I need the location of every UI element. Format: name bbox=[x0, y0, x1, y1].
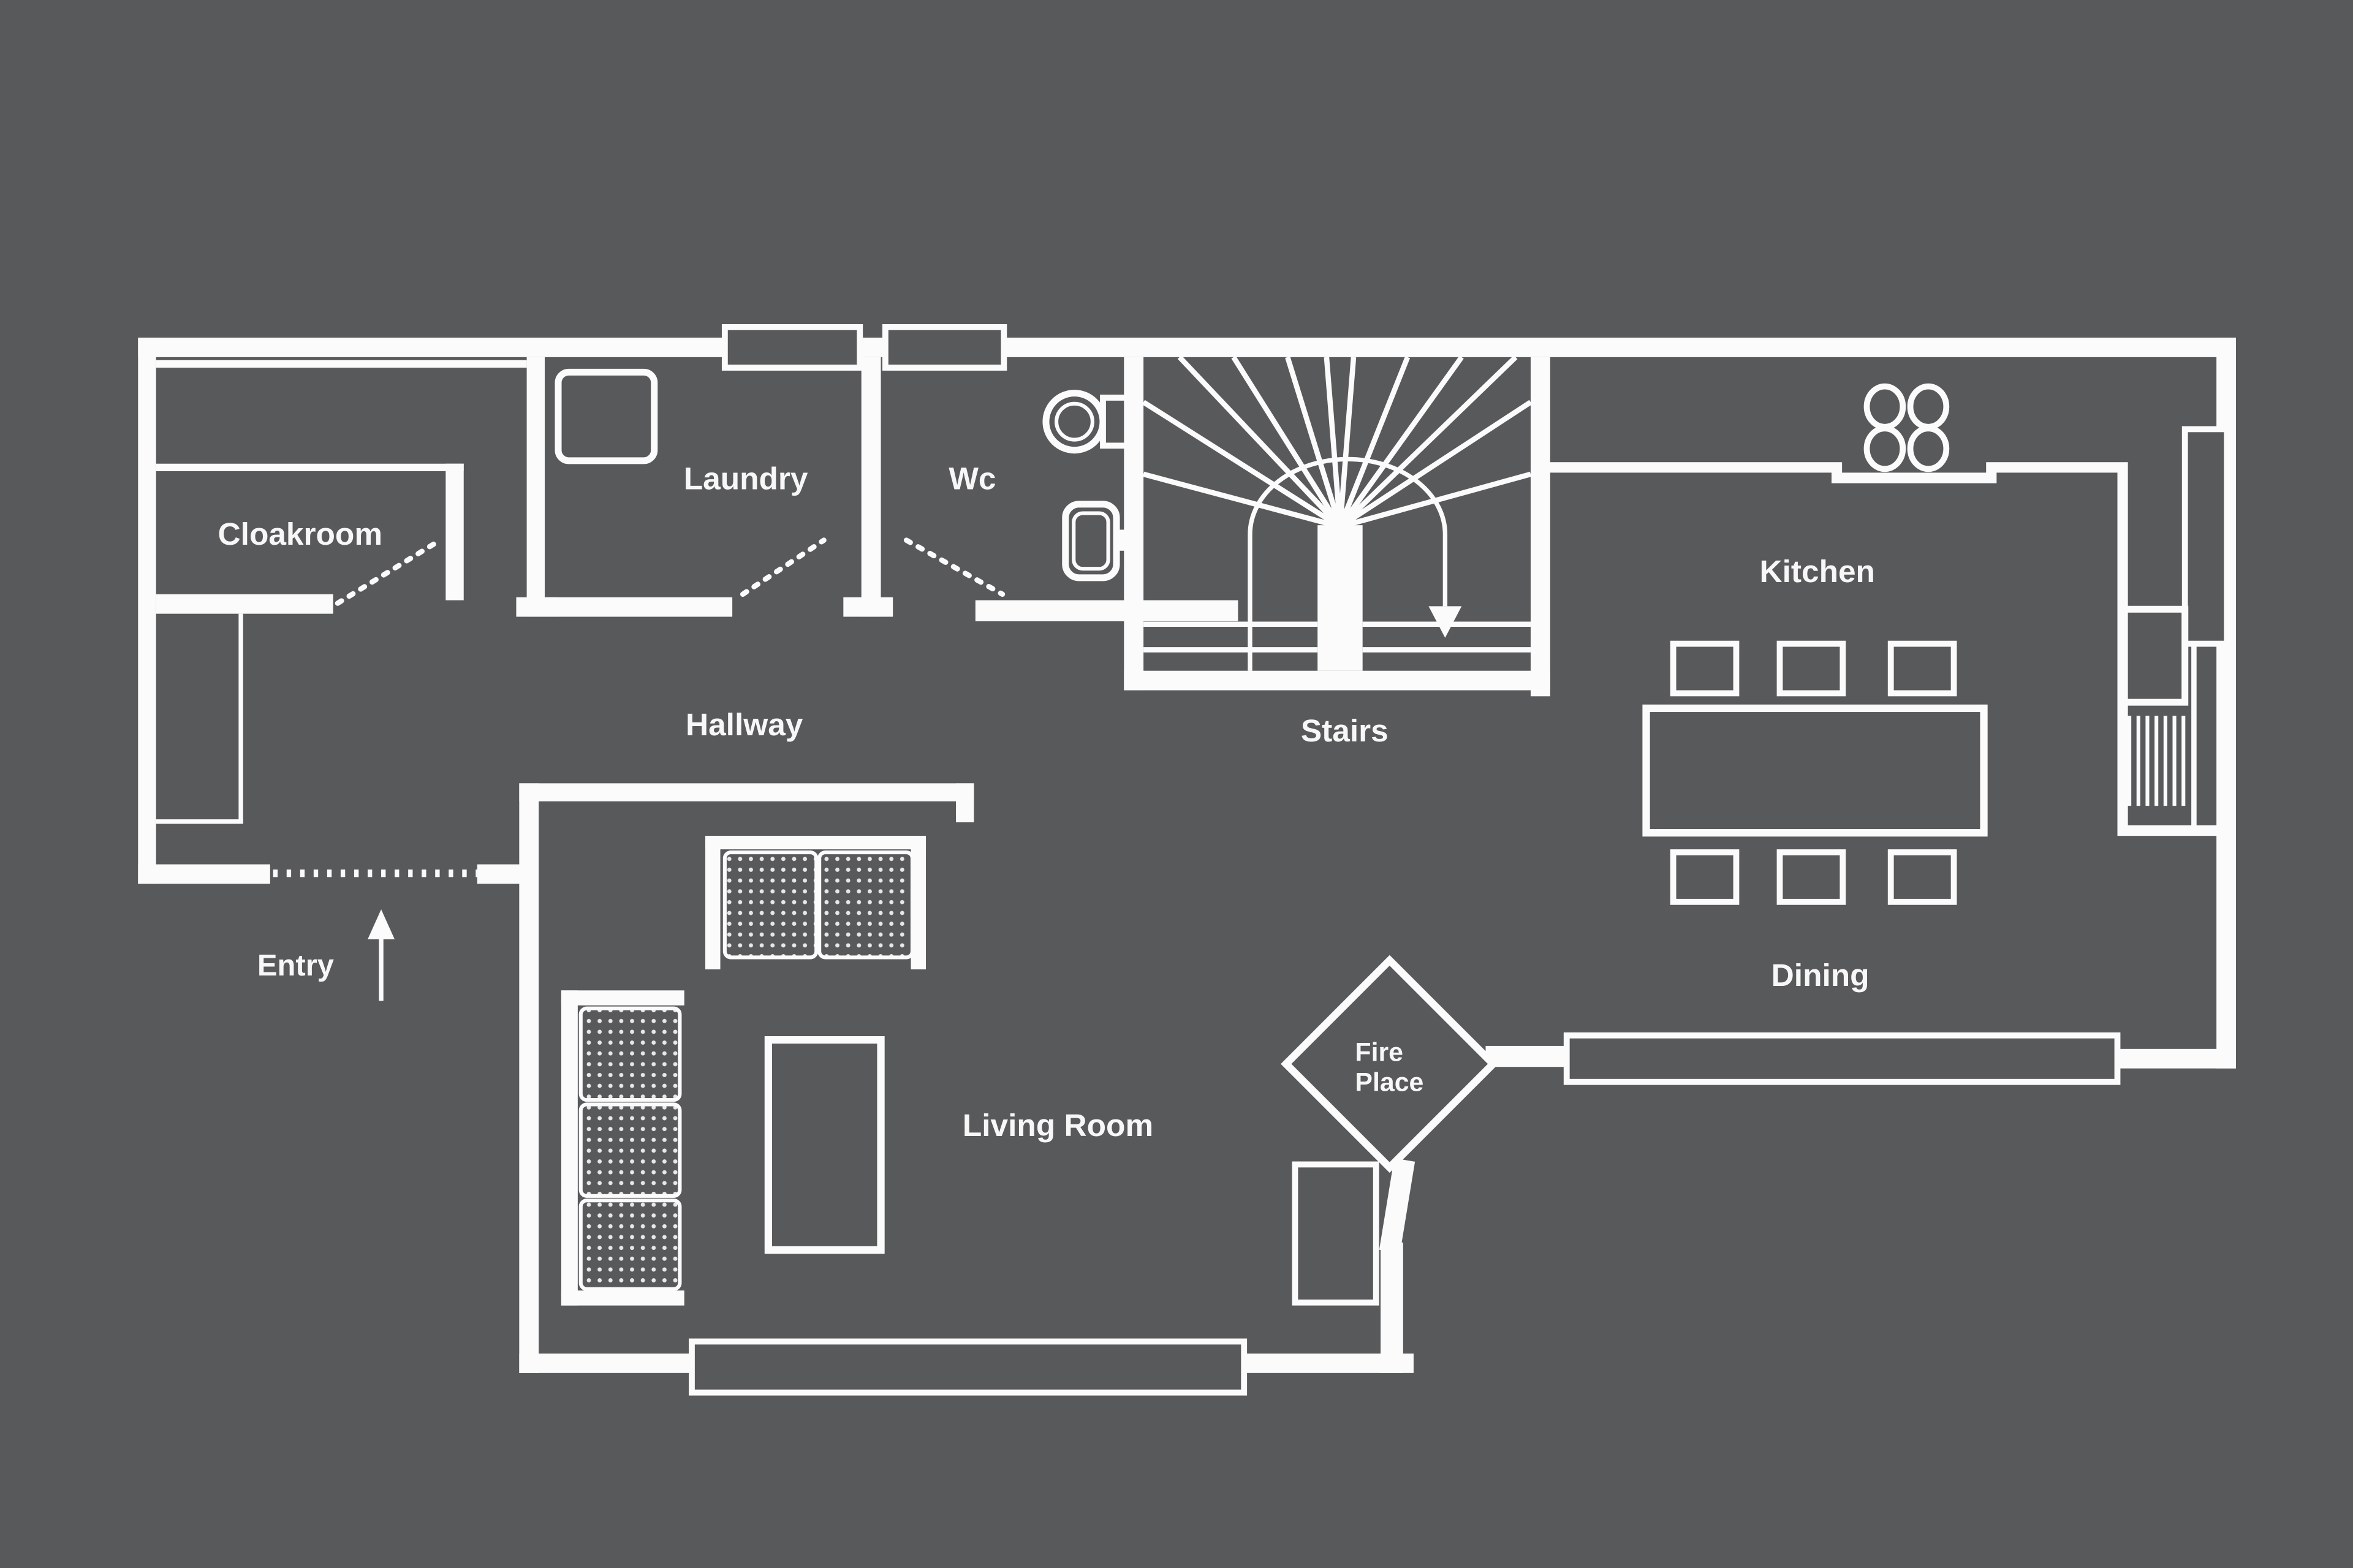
floor-plan-canvas: Cloakroom Laundry Wc Stairs Kitchen Hall… bbox=[0, 0, 2353, 1568]
bathroom-sink-icon bbox=[1066, 504, 1127, 578]
wall-entry-right bbox=[477, 865, 522, 884]
stair-newel-column bbox=[1317, 525, 1362, 671]
coffee-table-icon bbox=[768, 1040, 881, 1250]
winder-staircase-icon bbox=[1143, 357, 1531, 671]
window-kitchen-right bbox=[2185, 429, 2227, 643]
dining-chair bbox=[1779, 852, 1843, 902]
laundry-door-swing bbox=[743, 540, 824, 594]
room-label-fireplace-line1: Fire bbox=[1355, 1037, 1403, 1067]
cloakroom-door-swing bbox=[338, 543, 435, 604]
wall-living-right bbox=[1381, 1243, 1403, 1373]
wall-cloakroom-bottom bbox=[156, 594, 333, 614]
toilet-icon bbox=[1046, 393, 1127, 450]
sofa-arm bbox=[561, 1290, 684, 1305]
wall-top bbox=[138, 338, 2236, 357]
wall-dining-bottom bbox=[2118, 1049, 2236, 1069]
sink-basin-inner bbox=[1074, 513, 1108, 569]
hob-burner bbox=[1911, 428, 1947, 469]
floor-plan-drawing: Cloakroom Laundry Wc Stairs Kitchen Hall… bbox=[0, 0, 2353, 1568]
door-swings bbox=[338, 540, 1002, 604]
sofa-cushion bbox=[581, 1104, 680, 1195]
dining-chair bbox=[1673, 644, 1737, 694]
window-dining-bottom bbox=[1567, 1036, 2118, 1082]
room-label-kitchen: Kitchen bbox=[1759, 553, 1875, 589]
hob-burner bbox=[1911, 387, 1947, 427]
dining-chair bbox=[1891, 644, 1954, 694]
wall-entry-left bbox=[138, 865, 270, 884]
wall-wc-bottom bbox=[976, 600, 1238, 621]
wall-laundry-wc-divider bbox=[862, 357, 881, 617]
hob-icon bbox=[1867, 387, 1947, 469]
room-label-wc: Wc bbox=[949, 460, 996, 496]
room-label-dining: Dining bbox=[1771, 957, 1870, 993]
interior-walls bbox=[156, 357, 2236, 1373]
sofa-cushion bbox=[581, 1200, 680, 1289]
window-living-bottom bbox=[692, 1341, 1244, 1392]
wall-cloakroom-top bbox=[156, 464, 464, 471]
wall-stairs-right bbox=[1531, 357, 1550, 696]
room-label-laundry: Laundry bbox=[684, 460, 808, 496]
loveseat-cushion bbox=[819, 852, 912, 957]
dining-chair bbox=[1673, 852, 1737, 902]
room-label-living-room: Living Room bbox=[963, 1107, 1153, 1143]
wc-door-swing bbox=[906, 540, 1002, 594]
dining-chairs bbox=[1673, 644, 1954, 902]
loveseat-back bbox=[705, 836, 926, 849]
entry-arrow-icon bbox=[368, 909, 395, 1001]
hob-burner bbox=[1867, 428, 1903, 469]
loveseat-arm bbox=[705, 836, 720, 969]
wall-upper-strip bbox=[156, 360, 527, 368]
hob-burner bbox=[1867, 387, 1903, 427]
stair-treads-fan bbox=[1143, 357, 1531, 527]
wall-laundry-bottom bbox=[545, 597, 732, 617]
kitchen-sink-icon bbox=[2122, 609, 2185, 702]
window-top-laundry bbox=[725, 327, 860, 368]
sofa-icon bbox=[561, 990, 684, 1305]
room-label-entry: Entry bbox=[257, 949, 334, 982]
room-label-stairs: Stairs bbox=[1301, 713, 1389, 748]
room-label-fireplace-line2: Place bbox=[1355, 1067, 1423, 1097]
toilet-bowl bbox=[1046, 393, 1103, 450]
drainer-hatch-icon bbox=[2129, 716, 2183, 806]
window-top-wc bbox=[885, 327, 1004, 368]
wall-living-left bbox=[519, 783, 539, 1373]
wall-fireplace-diagonal bbox=[1390, 1160, 1404, 1251]
dining-table bbox=[1646, 708, 1984, 833]
dining-chair bbox=[1779, 644, 1843, 694]
wall-left bbox=[138, 338, 156, 884]
entry-arrow-head bbox=[368, 909, 395, 939]
sofa-arm bbox=[561, 990, 684, 1005]
wall-wc-divider-foot bbox=[843, 597, 893, 617]
dining-chair bbox=[1891, 852, 1954, 902]
dining-table-icon bbox=[1646, 644, 1984, 902]
toilet-cistern bbox=[1103, 398, 1127, 445]
wall-fireplace-to-window bbox=[1485, 1046, 1572, 1067]
wall-living-top bbox=[519, 783, 974, 801]
room-label-cloakroom: Cloakroom bbox=[218, 516, 383, 551]
wall-laundry-left bbox=[527, 357, 545, 617]
exterior-walls bbox=[138, 338, 2236, 1069]
sofa-cushion bbox=[581, 1009, 680, 1100]
loveseat-sofa-icon bbox=[705, 836, 926, 969]
wall-cloakroom-right bbox=[445, 464, 463, 600]
wall-living-top-notch bbox=[956, 783, 974, 822]
room-label-hallway: Hallway bbox=[686, 706, 803, 742]
log-store-icon bbox=[1295, 1164, 1376, 1302]
sofa-back bbox=[561, 990, 578, 1305]
floor-plan-page: Cloakroom Laundry Wc Stairs Kitchen Hall… bbox=[0, 0, 2353, 1568]
loveseat-cushion bbox=[725, 852, 816, 957]
wall-stairs-bottom bbox=[1124, 671, 1550, 691]
washing-machine-icon bbox=[558, 372, 654, 460]
closet-icon bbox=[156, 614, 243, 824]
toilet-bowl-inner bbox=[1056, 404, 1093, 440]
